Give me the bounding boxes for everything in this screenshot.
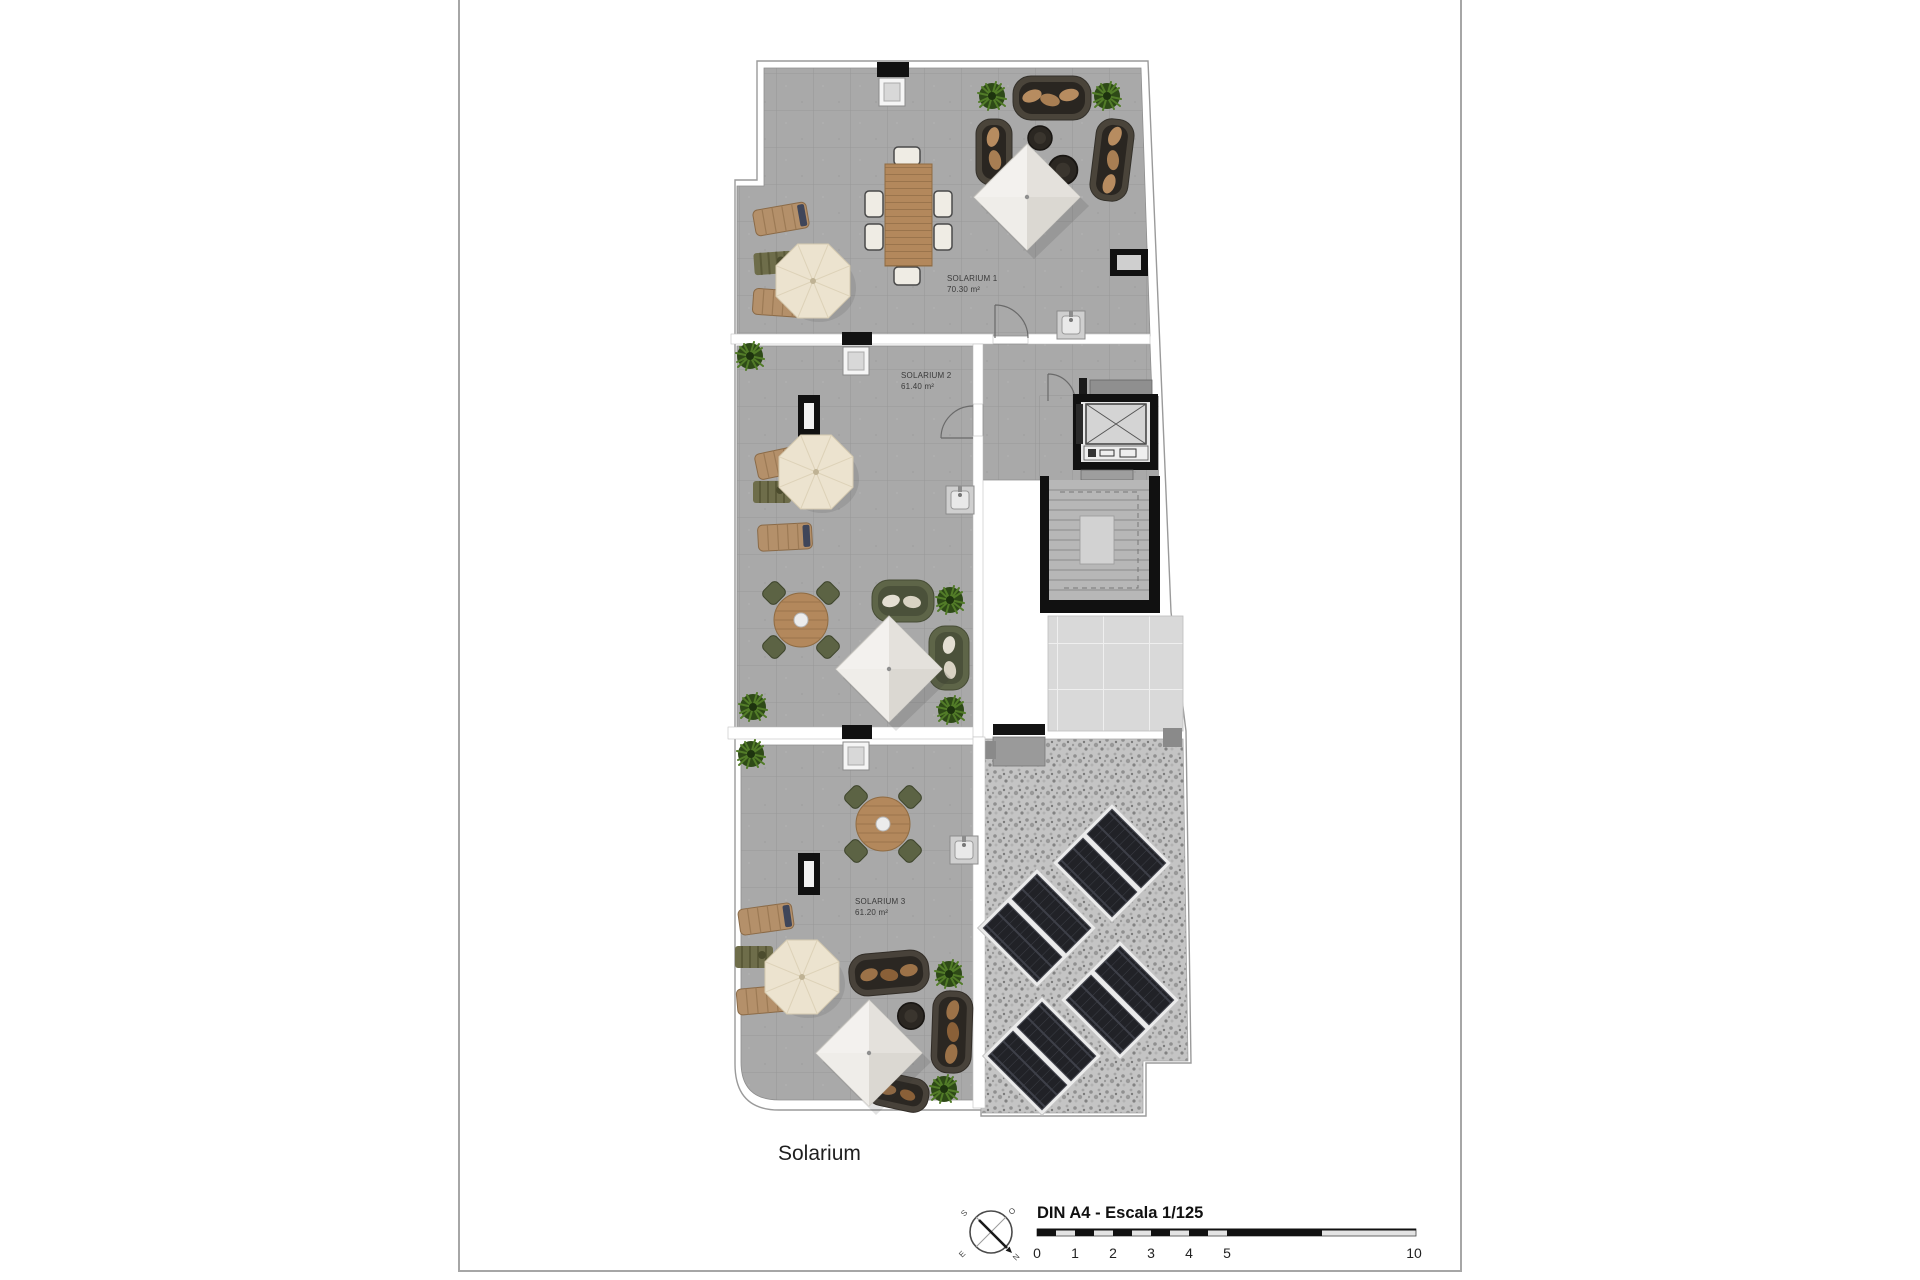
svg-text:4: 4: [1185, 1245, 1193, 1261]
floor-plan-svg: SOLARIUM 1 70.30 m² SOLARIUM 2 61.40 m² …: [0, 0, 1920, 1280]
svg-text:SOLARIUM 2: SOLARIUM 2: [901, 371, 952, 380]
rooftop-unit: [843, 742, 869, 770]
planter-box-s2: [798, 395, 820, 437]
svg-text:SOLARIUM 1: SOLARIUM 1: [947, 274, 998, 283]
rooftop-unit: [879, 78, 905, 106]
screenshot-stage: SOLARIUM 1 70.30 m² SOLARIUM 2 61.40 m² …: [0, 0, 1920, 1280]
planter-box-s3: [798, 853, 820, 895]
chimney-vent: [877, 62, 909, 77]
outdoor-sink: [1057, 311, 1085, 339]
svg-text:SOLARIUM 3: SOLARIUM 3: [855, 897, 906, 906]
svg-text:S: S: [959, 1208, 969, 1218]
svg-text:1: 1: [1071, 1245, 1079, 1261]
scale-label: DIN A4 - Escala 1/125: [1037, 1204, 1203, 1222]
scale-bar: DIN A4 - Escala 1/125 0 1 2 3 4 5 10: [1033, 1204, 1422, 1261]
wall-marker-2: [842, 725, 872, 739]
wall-marker-1: [842, 332, 872, 345]
elevator: [1073, 378, 1158, 470]
svg-text:61.20 m²: 61.20 m²: [855, 908, 888, 917]
terrace-bigtile-floor: [1048, 616, 1183, 731]
svg-text:0: 0: [1033, 1245, 1041, 1261]
outdoor-sink: [946, 486, 974, 514]
page-title: Solarium: [778, 1142, 861, 1165]
svg-text:70.30 m²: 70.30 m²: [947, 285, 980, 294]
svg-text:10: 10: [1406, 1245, 1422, 1261]
outdoor-sink: [950, 836, 978, 864]
svg-text:5: 5: [1223, 1245, 1231, 1261]
svg-text:N: N: [1011, 1252, 1022, 1263]
compass-rose: S O E N: [957, 1206, 1021, 1263]
svg-text:O: O: [1007, 1206, 1018, 1217]
wall-vent-box: [1110, 249, 1148, 276]
svg-text:61.40 m²: 61.40 m²: [901, 382, 934, 391]
svg-text:3: 3: [1147, 1245, 1155, 1261]
svg-text:E: E: [957, 1249, 967, 1259]
rooftop-unit: [843, 347, 869, 375]
stairwell: [1040, 470, 1160, 613]
svg-text:2: 2: [1109, 1245, 1117, 1261]
